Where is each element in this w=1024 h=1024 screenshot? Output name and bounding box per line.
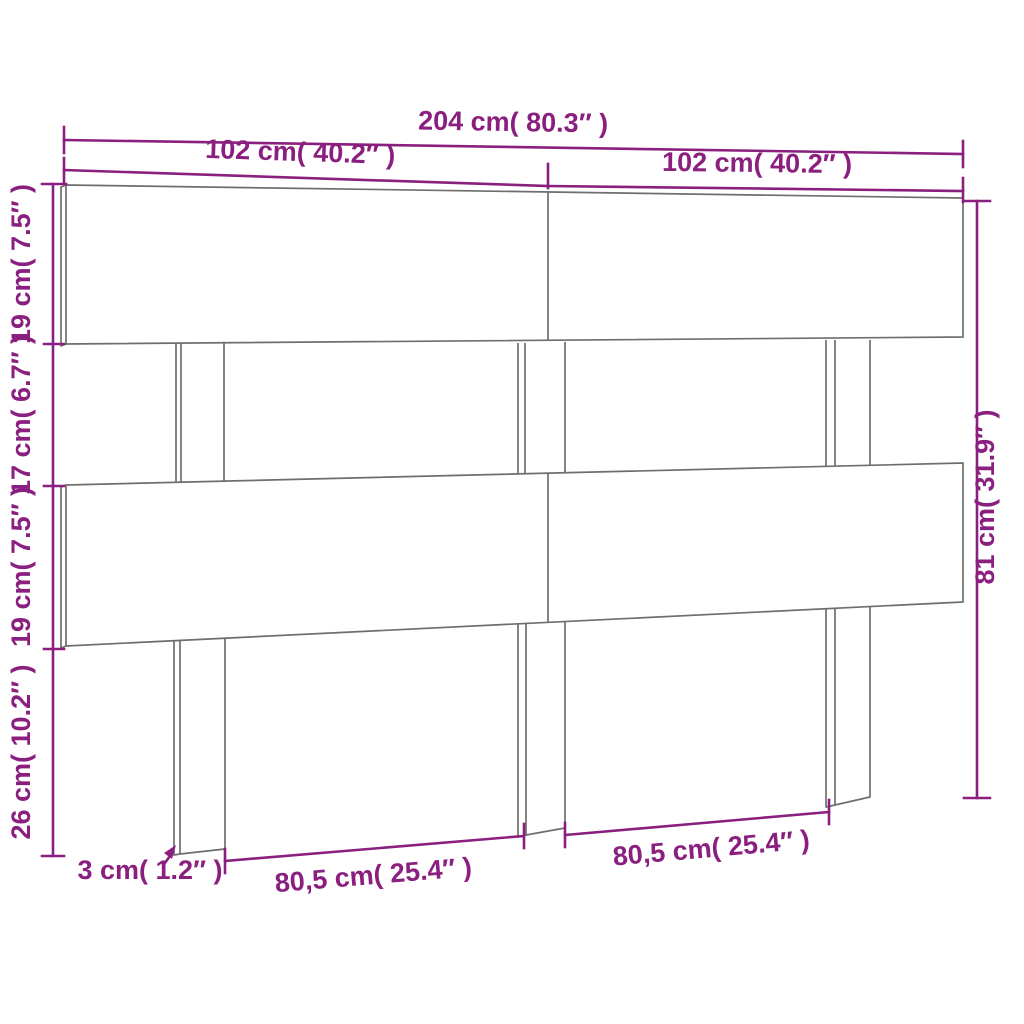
top-slat-front	[66, 185, 963, 344]
middle-slat-front	[66, 463, 963, 646]
label-slat-top-height: 19 cm( 7.5″ )	[6, 184, 36, 344]
leg-center	[518, 621, 565, 837]
label-leg-thickness: 3 cm( 1.2″ )	[78, 855, 223, 885]
post-right	[826, 340, 870, 466]
diagram-stage: 204 cm( 80.3″ ) 102 cm( 40.2″ ) 102 cm( …	[0, 0, 1024, 1024]
label-gap-height: 17 cm( 6.7″ )	[6, 335, 36, 495]
dimension-lines	[42, 127, 990, 873]
label-span-left: 80,5 cm( 25.4″ )	[274, 852, 473, 898]
leg-left	[174, 638, 225, 855]
post-center	[518, 342, 565, 474]
dim-line-left-heights	[42, 184, 66, 856]
label-leg-height: 26 cm( 10.2″ )	[6, 664, 36, 839]
label-span-right: 80,5 cm( 25.4″ )	[612, 824, 811, 871]
leg-right	[826, 606, 870, 807]
dimension-labels: 204 cm( 80.3″ ) 102 cm( 40.2″ ) 102 cm( …	[6, 106, 1000, 899]
label-panel-width-right: 102 cm( 40.2″ )	[662, 147, 852, 179]
label-panel-width-left: 102 cm( 40.2″ )	[205, 134, 396, 170]
label-slat-middle-height: 19 cm( 7.5″ )	[6, 487, 36, 647]
dim-line-panel-right	[548, 178, 963, 202]
post-left	[176, 343, 224, 482]
label-total-width: 204 cm( 80.3″ )	[418, 106, 608, 139]
headboard-dimension-diagram: 204 cm( 80.3″ ) 102 cm( 40.2″ ) 102 cm( …	[0, 0, 1024, 1024]
label-total-height: 81 cm( 31.9″ )	[970, 409, 1000, 584]
headboard-structure	[61, 185, 963, 855]
